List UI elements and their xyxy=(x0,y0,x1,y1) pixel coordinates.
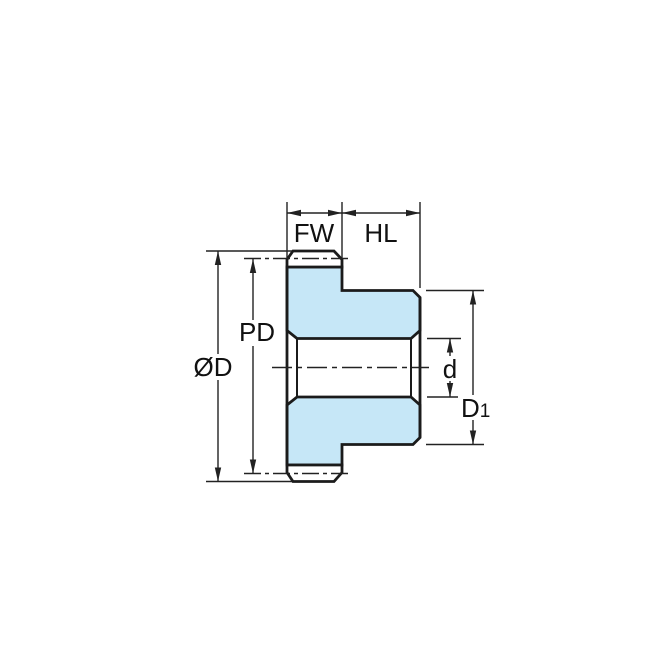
arrowhead xyxy=(287,210,301,216)
label-hub-diameter-subscript: 1 xyxy=(480,401,491,422)
arrowhead xyxy=(447,383,453,397)
gear-dimension-drawing: FW HL PD ØD d D1 xyxy=(0,0,670,670)
arrowhead xyxy=(342,210,356,216)
arrowhead xyxy=(215,468,221,482)
gear-lower-section xyxy=(287,397,420,465)
arrowhead xyxy=(250,259,256,273)
arrowhead xyxy=(406,210,420,216)
technical-drawing-page: FW HL PD ØD d D1 xyxy=(0,0,670,670)
label-face-width: FW xyxy=(294,218,335,248)
arrowhead xyxy=(447,339,453,353)
arrowhead xyxy=(215,251,221,265)
arrowhead xyxy=(328,210,342,216)
label-hub-length: HL xyxy=(364,218,397,248)
gear-cross-section xyxy=(287,251,420,482)
arrowhead xyxy=(470,431,476,445)
label-pitch-diameter: PD xyxy=(239,317,275,347)
label-hub-diameter-base: D xyxy=(461,393,480,423)
gear-upper-section xyxy=(287,267,420,339)
label-outer-diameter: ØD xyxy=(194,352,233,382)
arrowhead xyxy=(250,460,256,474)
arrowhead xyxy=(470,291,476,305)
label-bore-diameter: d xyxy=(443,354,457,384)
